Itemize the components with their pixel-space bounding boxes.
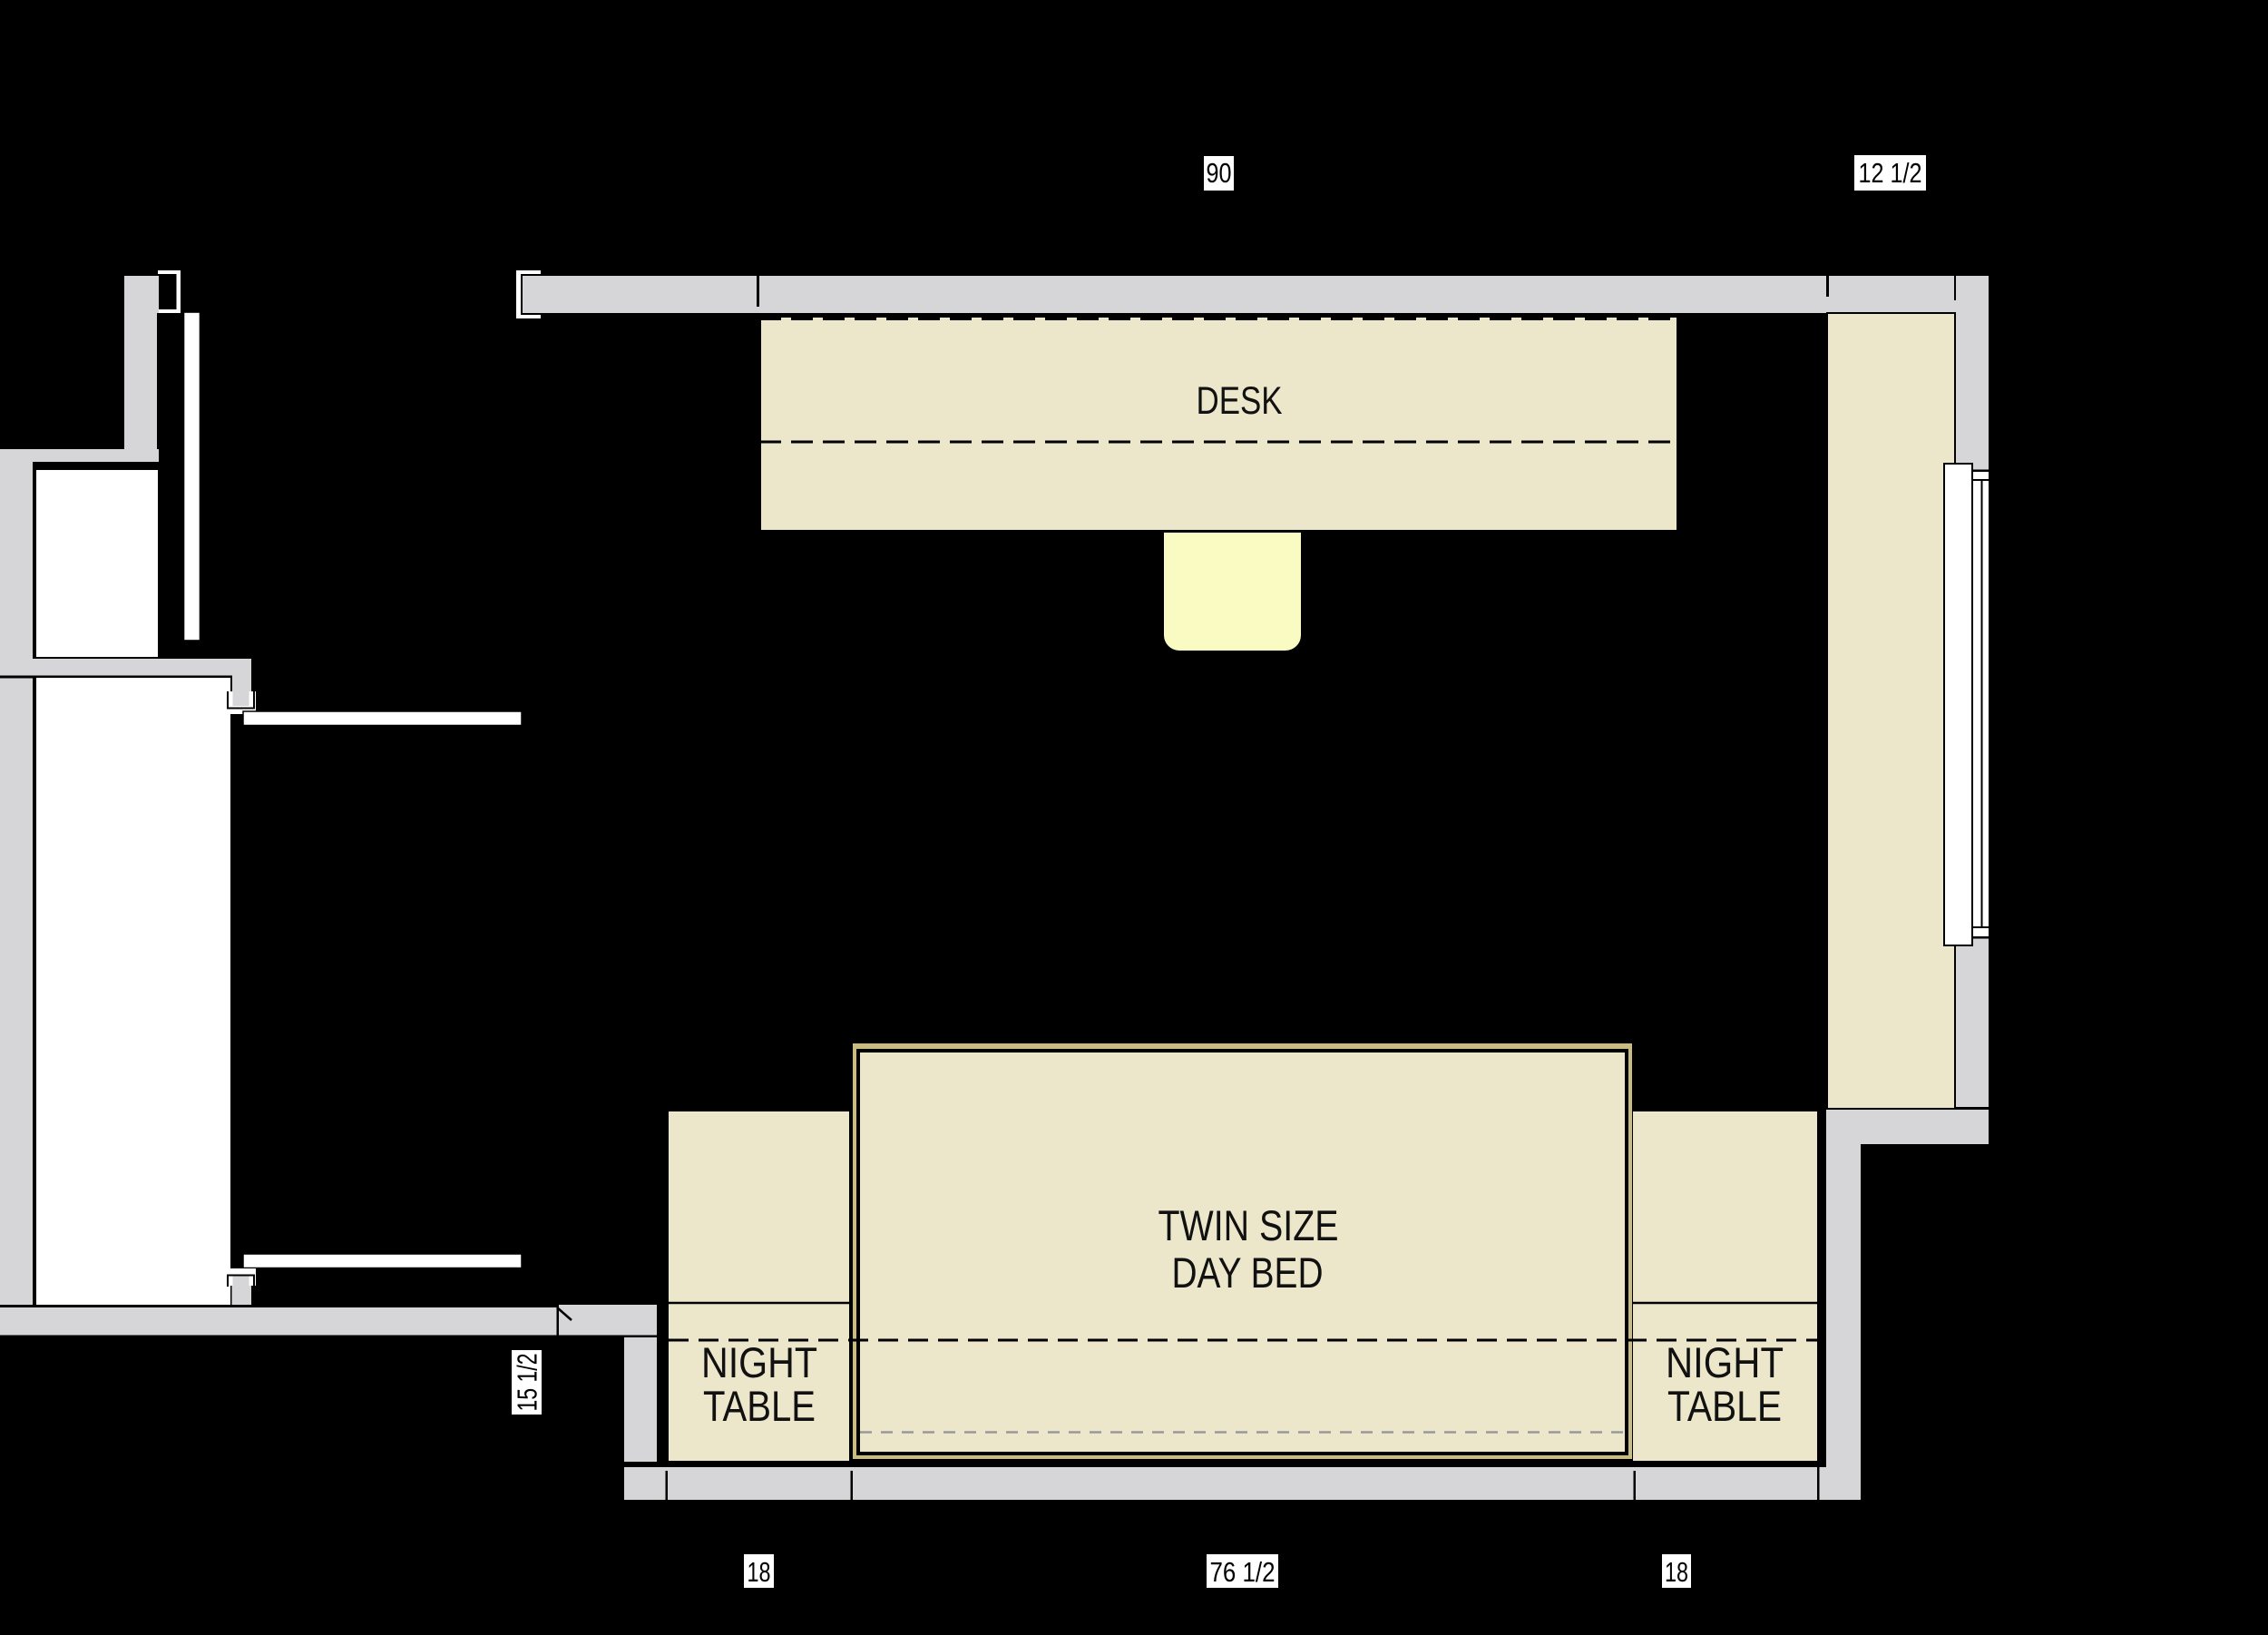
svg-text:12 1/2: 12 1/2 [1859, 157, 1922, 189]
svg-text:18: 18 [1665, 1556, 1688, 1588]
svg-text:DESK: DESK [1197, 379, 1283, 423]
svg-text:TABLE: TABLE [703, 1382, 816, 1430]
svg-text:76 1/2: 76 1/2 [1210, 1556, 1276, 1588]
svg-text:NIGHT: NIGHT [1666, 1338, 1784, 1386]
svg-text:DAY BED: DAY BED [1172, 1248, 1324, 1297]
svg-text:TWIN SIZE: TWIN SIZE [1158, 1201, 1339, 1249]
svg-text:NIGHT: NIGHT [701, 1338, 817, 1386]
svg-text:TABLE: TABLE [1667, 1382, 1782, 1430]
svg-text:15 1/2: 15 1/2 [512, 1354, 543, 1412]
svg-text:90: 90 [1207, 157, 1232, 189]
svg-text:18: 18 [748, 1556, 771, 1588]
